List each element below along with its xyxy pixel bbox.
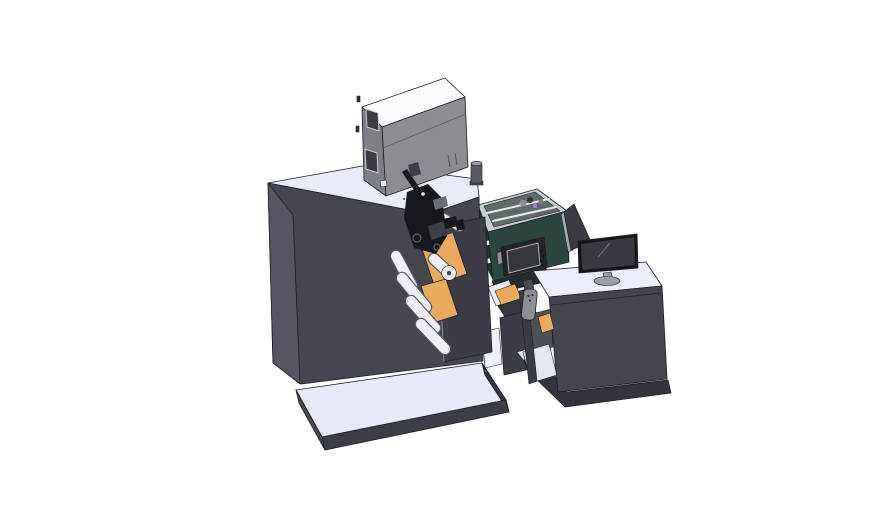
- box-window: [365, 149, 378, 173]
- desk-front-face: [549, 286, 667, 392]
- pendant-body[interactable]: [521, 288, 538, 320]
- box-window: [366, 109, 379, 131]
- exhaust-canister: [470, 161, 483, 185]
- cabinet-mark-dot: [403, 198, 405, 200]
- machine-render-canvas: [0, 0, 888, 522]
- box-corner-square: [380, 180, 387, 187]
- chamber-part-gray2: [539, 200, 544, 205]
- operator-desk: [519, 262, 667, 392]
- monitor-stand-base: [594, 277, 620, 286]
- print-head-ring: [413, 234, 421, 242]
- cad-render-stage: [0, 0, 888, 522]
- panel-button[interactable]: [540, 250, 542, 252]
- chamber-part-dark: [527, 197, 533, 203]
- chamber-part-gray: [520, 200, 527, 207]
- print-head-ring: [434, 244, 440, 250]
- roller-hub: [447, 271, 451, 275]
- panel-button[interactable]: [542, 255, 544, 257]
- print-head-highlight-dot: [421, 192, 425, 196]
- box-tab: [356, 126, 359, 132]
- panel-button[interactable]: [540, 260, 542, 262]
- chamber-part-magenta: [533, 204, 537, 208]
- box-tab: [357, 96, 360, 102]
- canister-cap: [471, 161, 482, 165]
